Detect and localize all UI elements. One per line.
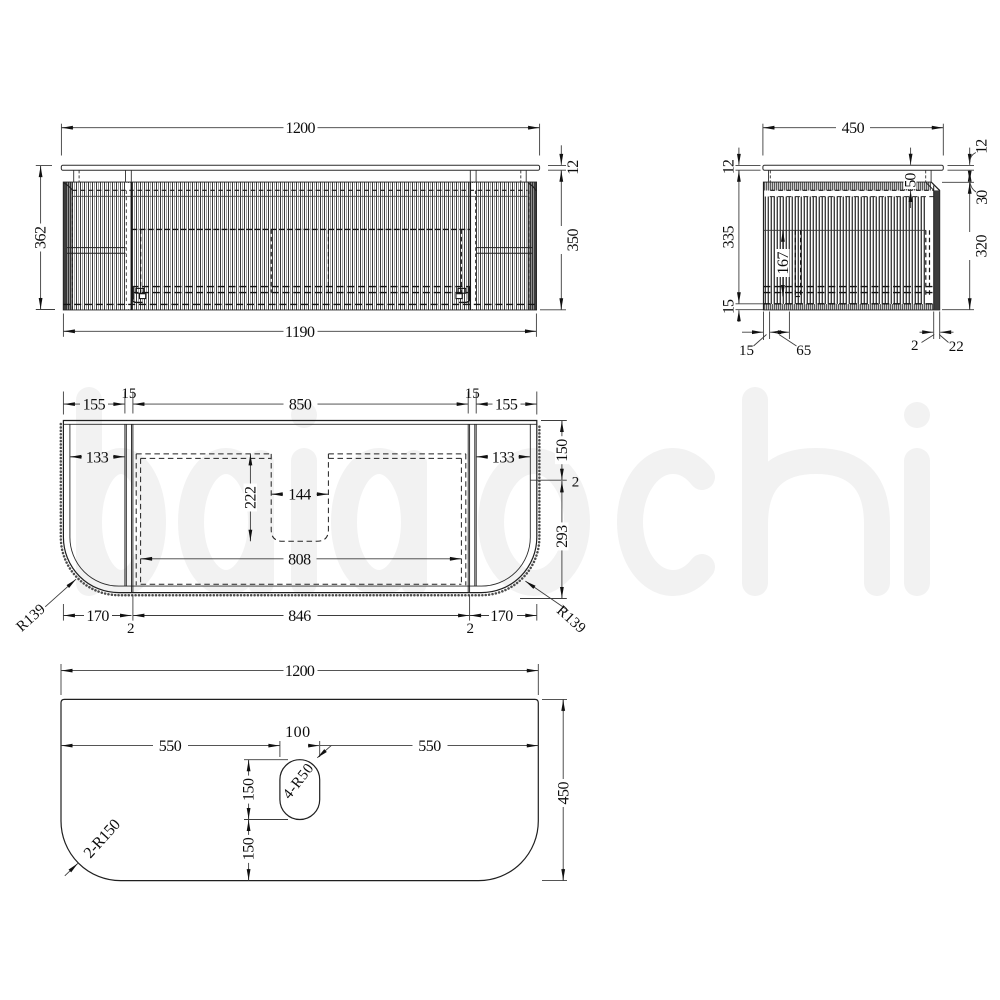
- svg-text:30: 30: [974, 190, 991, 205]
- svg-text:450: 450: [555, 782, 572, 805]
- svg-text:170: 170: [490, 608, 513, 625]
- svg-text:150: 150: [241, 837, 258, 860]
- svg-text:850: 850: [289, 397, 312, 414]
- svg-text:293: 293: [554, 525, 571, 548]
- svg-text:167: 167: [775, 252, 792, 275]
- svg-text:2: 2: [127, 621, 135, 637]
- svg-text:144: 144: [288, 487, 311, 504]
- svg-text:222: 222: [243, 486, 260, 509]
- svg-text:155: 155: [83, 397, 106, 414]
- svg-text:550: 550: [159, 738, 182, 755]
- svg-text:12: 12: [974, 139, 991, 154]
- svg-text:150: 150: [241, 778, 258, 801]
- svg-text:335: 335: [721, 226, 738, 249]
- svg-text:12: 12: [721, 159, 738, 174]
- svg-text:170: 170: [86, 608, 109, 625]
- svg-text:550: 550: [418, 738, 441, 755]
- svg-text:1200: 1200: [286, 120, 316, 137]
- svg-text:50: 50: [902, 173, 919, 188]
- svg-text:2: 2: [466, 621, 474, 637]
- svg-text:350: 350: [565, 229, 582, 252]
- svg-text:15: 15: [121, 386, 136, 402]
- svg-text:100: 100: [285, 724, 310, 741]
- svg-text:846: 846: [288, 608, 311, 625]
- svg-text:2: 2: [911, 338, 919, 354]
- svg-text:450: 450: [842, 120, 865, 137]
- svg-text:65: 65: [796, 343, 811, 359]
- svg-text:320: 320: [974, 235, 991, 258]
- svg-text:15: 15: [739, 343, 754, 359]
- svg-text:15: 15: [465, 386, 480, 402]
- svg-text:133: 133: [492, 449, 515, 466]
- svg-text:2: 2: [572, 475, 580, 491]
- svg-text:362: 362: [32, 226, 49, 249]
- svg-text:150: 150: [554, 439, 571, 462]
- svg-text:155: 155: [495, 397, 518, 414]
- svg-text:15: 15: [721, 299, 738, 314]
- svg-text:808: 808: [288, 551, 311, 568]
- svg-text:12: 12: [565, 160, 582, 175]
- svg-text:22: 22: [949, 339, 964, 355]
- svg-text:1200: 1200: [285, 663, 315, 680]
- svg-text:1190: 1190: [285, 324, 315, 341]
- svg-text:133: 133: [86, 449, 109, 466]
